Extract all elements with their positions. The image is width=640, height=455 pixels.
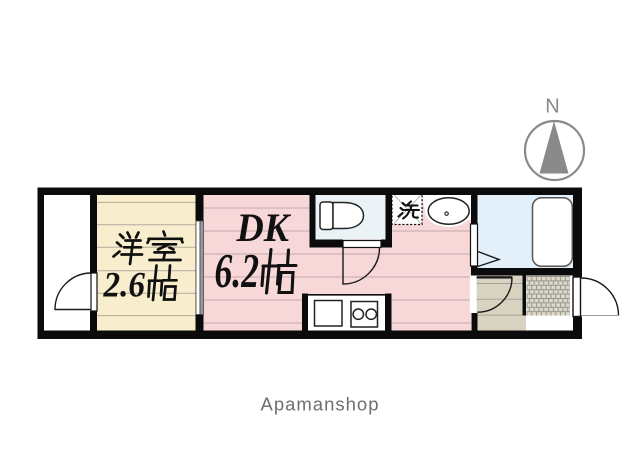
svg-text:2.6: 2.6: [103, 265, 145, 305]
svg-text:N: N: [545, 96, 559, 118]
svg-text:6.2: 6.2: [215, 243, 260, 298]
svg-text:Apamanshop: Apamanshop: [260, 394, 379, 415]
